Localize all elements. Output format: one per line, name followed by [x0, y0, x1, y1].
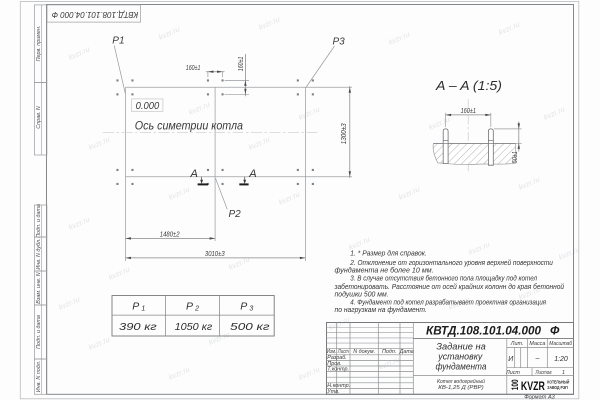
svg-text:Лит.: Лит. [510, 341, 524, 347]
svg-text:1050 кг: 1050 кг [175, 322, 213, 333]
svg-text:3010±3: 3010±3 [205, 251, 225, 258]
svg-text:500 кг: 500 кг [230, 322, 269, 333]
svg-text:Листов: Листов [535, 370, 552, 376]
svg-text:100: 100 [510, 379, 521, 390]
svg-text:1:20: 1:20 [554, 356, 568, 363]
svg-text:1480±2: 1480±2 [160, 232, 180, 239]
svg-text:160±1: 160±1 [461, 108, 477, 115]
svg-text:160±1: 160±1 [238, 56, 245, 71]
svg-text:КВТД.108.101.04.000: КВТД.108.101.04.000 [426, 323, 541, 337]
svg-text:P2: P2 [229, 209, 242, 220]
svg-text:390 кг: 390 кг [119, 322, 157, 333]
svg-text:КВ-1,25 Д (РВР): КВ-1,25 Д (РВР) [438, 385, 483, 391]
svg-text:Подп.: Подп. [382, 349, 396, 355]
svg-text:Т.контр.: Т.контр. [327, 366, 349, 372]
svg-text:Дата: Дата [399, 349, 414, 355]
svg-text:0.000: 0.000 [136, 101, 160, 112]
svg-text:Перв. примен.: Перв. примен. [36, 26, 42, 62]
svg-text:1: 1 [562, 370, 565, 376]
svg-text:по нагрузкам на фундамент.: по нагрузкам на фундамент. [335, 305, 427, 314]
svg-text:фундамента: фундамента [436, 361, 487, 372]
svg-text:КОТЕЛЬНЫЙ: КОТЕЛЬНЫЙ [547, 380, 569, 385]
svg-text:A: A [190, 168, 198, 180]
svg-text:1. * Размер для справок.: 1. * Размер для справок. [350, 249, 427, 258]
svg-text:50±1: 50±1 [512, 151, 519, 163]
svg-text:P3: P3 [333, 36, 346, 47]
svg-text:Инв. N подл.: Инв. N подл. [36, 361, 42, 393]
svg-text:Инв. N дубл.: Инв. N дубл. [36, 238, 42, 269]
svg-text:A: A [248, 168, 256, 180]
svg-text:Ось симетрии котла: Ось симетрии котла [135, 118, 243, 132]
svg-text:Формат А3: Формат А3 [524, 394, 555, 400]
svg-text:Котел водогрейный: Котел водогрейный [437, 378, 485, 385]
svg-text:Утв.: Утв. [326, 389, 339, 395]
svg-text:ЗАВОД РЭП: ЗАВОД РЭП [547, 385, 568, 390]
svg-text:N докум.: N докум. [353, 349, 375, 355]
svg-text:Справ. N: Справ. N [36, 106, 42, 129]
svg-text:Лист: Лист [505, 370, 520, 376]
svg-text:Взам. инв. N: Взам. инв. N [36, 272, 42, 304]
svg-text:1300±3: 1300±3 [341, 123, 348, 144]
svg-text:160±1: 160±1 [186, 65, 201, 72]
svg-text:Подп. и дата: Подп. и дата [36, 315, 42, 349]
svg-text:Масштаб: Масштаб [549, 341, 573, 347]
svg-text:KVZR: KVZR [521, 380, 545, 393]
svg-text:–: – [534, 355, 539, 362]
svg-text:P1: P1 [112, 36, 124, 47]
svg-text:Масса: Масса [529, 341, 545, 347]
svg-text:Ф: Ф [550, 323, 560, 337]
svg-text:A – A (1:5): A – A (1:5) [435, 79, 502, 93]
svg-text:КВТД.108.101.04.000 Ф: КВТД.108.101.04.000 Ф [51, 10, 138, 19]
svg-text:Подп. и дата: Подп. и дата [36, 204, 42, 238]
